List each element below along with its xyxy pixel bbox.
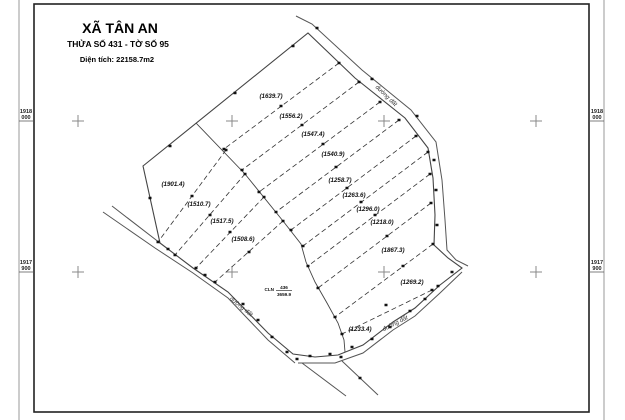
parcel-label: (1517.5) [210,218,233,225]
cadastral-map-page: 1918 000 1917 900 1918 000 1917 900 XÃ T… [0,0,625,420]
parcel-label: (1556.2) [279,113,302,120]
parcel-label: (1540.9) [321,151,344,158]
parcel-label: (1296.0) [356,206,379,213]
road-top-right-outer [296,16,468,266]
area-title: Diện tích: 22158.7m2 [80,55,154,64]
center-parcel-label: CLN 436 3659.9 [265,285,292,297]
coord-left-top-sub: 000 [21,115,30,121]
parcel-label: (1547.4) [301,131,324,138]
coord-right-bottom-sub: 900 [592,266,601,272]
parcel-label: (1901.4) [161,181,184,188]
coord-right-top-sub: 000 [592,115,601,121]
coord-left-bottom-sub: 900 [21,266,30,272]
parcel-label: (1510.7) [187,201,210,208]
center-parcel-number: 436 [280,285,288,290]
commune-title: XÃ TÂN AN [82,19,158,36]
parcel-label: (1508.6) [231,236,254,243]
center-parcel-area: 3659.9 [277,292,291,297]
grid-tick-lines [19,121,604,272]
road-label-bottom-left: đường đất [228,295,254,318]
grid-cross-marks [72,115,542,278]
parcel-label: (1233.4) [348,326,371,333]
parcel-label: (1258.7) [328,177,351,184]
parcel-label: (1867.3) [381,247,404,254]
parcel-sheet-title: THỬA SỐ 431 - TỜ SỐ 95 [67,38,169,49]
road-label-bottom-right: đường đất [381,314,409,333]
inner-frame [34,4,589,412]
parcel-area-labels: (1901.4) (1510.7) (1517.5) (1508.6) (163… [161,93,423,333]
parcel-label: (1639.7) [259,93,282,100]
roads [103,16,468,396]
parcel-label: (1218.0) [370,219,393,226]
title-block: XÃ TÂN AN THỬA SỐ 431 - TỜ SỐ 95 Diện tí… [67,19,169,64]
center-parcel-landtype: CLN [265,287,275,292]
parcel-label: (1263.6) [342,192,365,199]
parcel-label: (1269.2) [400,279,423,286]
cadastral-map: 1918 000 1917 900 1918 000 1917 900 XÃ T… [0,0,625,420]
road-fork-left-line [302,363,346,396]
